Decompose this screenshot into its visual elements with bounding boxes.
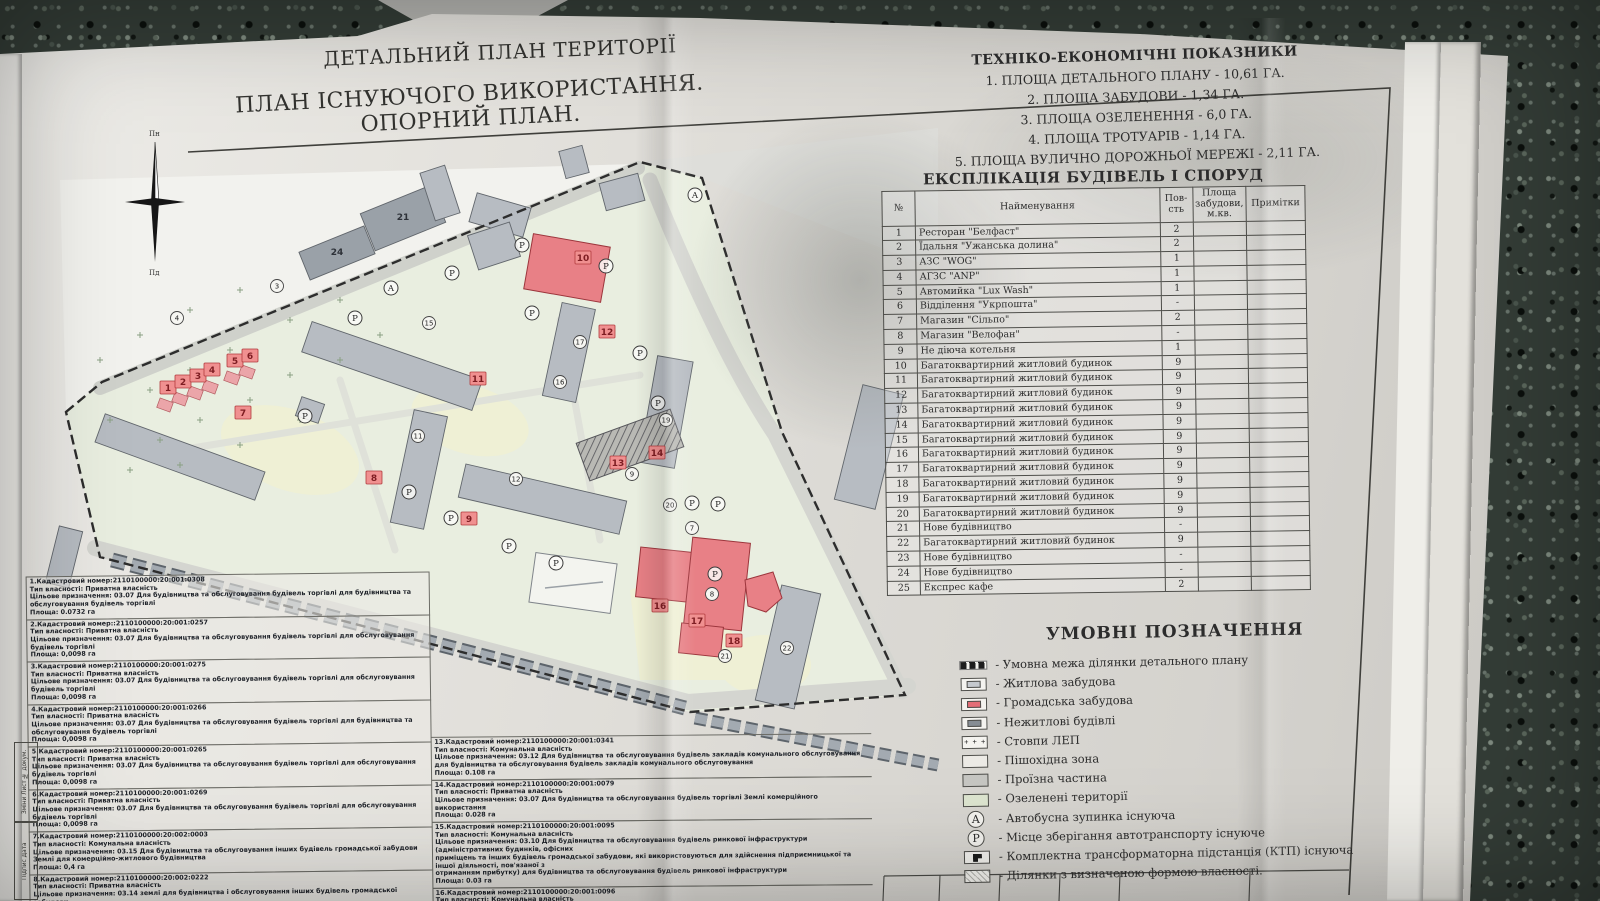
row-area-cell: [1194, 280, 1248, 296]
ktp-symbol-icon: [964, 851, 990, 864]
row-number-cell: 3: [883, 255, 916, 270]
row-number-cell: 2: [883, 240, 916, 255]
row-note-cell: [1248, 324, 1307, 340]
explication-table: №НайменуванняПов-стьПлоща забудови, м.кв…: [881, 185, 1311, 596]
cadastral-block: 15.Кадастровий номер:2110100000:20:001:0…: [432, 818, 873, 888]
row-note-cell: [1250, 457, 1309, 473]
row-area-cell: [1195, 354, 1249, 370]
row-area-cell: [1196, 413, 1250, 429]
row-number-cell: 15: [885, 433, 918, 448]
row-floors-cell: 2: [1160, 236, 1193, 251]
row-area-cell: [1197, 546, 1251, 562]
cadastral-block: 3.Кадастровий номер:2110100000:20:001:02…: [27, 657, 432, 705]
explication-section: ЕКСПЛІКАЦІЯ БУДІВЕЛЬ І СПОРУД №Найменува…: [881, 165, 1311, 596]
row-floors-cell: -: [1161, 325, 1194, 340]
row-floors-cell: 9: [1162, 355, 1195, 370]
row-number-cell: 5: [883, 285, 916, 300]
row-note-cell: [1249, 442, 1308, 458]
row-floors-cell: 1: [1160, 251, 1193, 266]
row-number-cell: 11: [884, 373, 917, 388]
row-number-cell: 17: [886, 462, 919, 477]
row-note-cell: [1251, 546, 1310, 562]
green-symbol-icon: [963, 793, 989, 806]
cadastral-block: 6.Кадастровий номер:2110100000:20:001:02…: [28, 784, 433, 832]
row-number-cell: 23: [887, 551, 920, 566]
row-note-cell: [1250, 472, 1309, 488]
edge-title-block-1: Зміни Лист № докум.: [14, 742, 38, 822]
edge-title-block-label-2: Підпис Дата: [15, 823, 37, 899]
row-area-cell: [1196, 472, 1250, 488]
row-note-cell: [1249, 427, 1308, 443]
row-floors-cell: 9: [1162, 370, 1195, 385]
row-floors-cell: 2: [1165, 577, 1198, 592]
cadastral-block: 7.Кадастровий номер:2110100000:20:002:00…: [29, 827, 434, 875]
row-number-cell: 20: [886, 507, 919, 522]
row-number-cell: 9: [884, 344, 917, 359]
row-note-cell: [1247, 294, 1306, 310]
legend-item-label: - Громадська забудова: [996, 691, 1133, 713]
cadastral-block: 2.Кадастровий номер::2110100000:20:001:0…: [26, 614, 431, 662]
cadastral-block: 8.Кадастровий номер:2110100000:20:002:02…: [29, 869, 434, 901]
cadastral-block: 1.Кадастровий номер:2110100000:20:001:03…: [26, 572, 431, 620]
row-number-cell: 12: [885, 388, 918, 403]
row-area-cell: [1194, 295, 1248, 311]
row-floors-cell: 9: [1164, 532, 1197, 547]
row-note-cell: [1248, 338, 1307, 354]
legend-item-label: - Озеленені території: [998, 787, 1128, 809]
poles-symbol-icon: [962, 736, 988, 749]
photo-of-plan-document: Пн Пд 1234567891011121314161718PPPPPPPPP…: [0, 0, 1600, 901]
boundary-symbol-icon: [960, 662, 986, 669]
row-area-cell: [1195, 398, 1249, 414]
nonres-symbol-icon: [961, 716, 987, 729]
row-note-cell: [1250, 501, 1309, 517]
row-note-cell: [1248, 368, 1307, 384]
row-area-cell: [1193, 265, 1247, 281]
row-note-cell: [1247, 279, 1306, 295]
pedestrian-symbol-icon: [962, 755, 988, 768]
row-number-cell: 1: [882, 226, 915, 241]
row-floors-cell: 9: [1162, 399, 1195, 414]
row-number-cell: 25: [887, 581, 920, 596]
row-note-cell: [1251, 575, 1310, 591]
row-area-cell: [1196, 458, 1250, 474]
row-area-cell: [1197, 532, 1251, 548]
legend-item-label: - Проїзна частина: [997, 769, 1107, 790]
row-note-cell: [1250, 486, 1309, 502]
row-note-cell: [1247, 250, 1306, 266]
legend-section: УМОВНІ ПОЗНАЧЕННЯ - Умовна межа ділянки …: [960, 618, 1395, 887]
cadastral-block: 13.Кадастровий номер:2110100000:20:001:0…: [431, 733, 871, 780]
parking-symbol-icon: P: [967, 830, 984, 847]
row-area-cell: [1193, 221, 1247, 237]
row-area-cell: [1197, 517, 1251, 533]
row-number-cell: 6: [883, 299, 916, 314]
explication-header-row: №НайменуванняПов-стьПлоща забудови, м.кв…: [882, 186, 1305, 226]
row-number-cell: 21: [886, 521, 919, 536]
row-floors-cell: 2: [1161, 310, 1194, 325]
row-note-cell: [1249, 383, 1308, 399]
explication-column-header: №: [882, 191, 915, 226]
residential-symbol-icon: [961, 678, 987, 691]
row-area-cell: [1195, 384, 1249, 400]
row-floors-cell: -: [1164, 547, 1197, 562]
row-floors-cell: 1: [1160, 266, 1193, 281]
explication-column-header: Пов-сть: [1159, 187, 1192, 222]
cadastral-block: 4.Кадастровий номер:2110100000:20:001:02…: [27, 699, 432, 747]
row-area-cell: [1195, 369, 1249, 385]
row-note-cell: [1251, 560, 1310, 576]
row-note-cell: [1251, 531, 1310, 547]
row-floors-cell: 9: [1164, 503, 1197, 518]
row-area-cell: [1198, 561, 1252, 577]
row-area-cell: [1196, 443, 1250, 459]
row-note-cell: [1246, 235, 1305, 251]
row-number-cell: 14: [885, 418, 918, 433]
row-floors-cell: 9: [1163, 414, 1196, 429]
row-note-cell: [1250, 516, 1309, 532]
row-area-cell: [1193, 236, 1247, 252]
cadastral-block: 16.Кадастровий номер:2110100000:20:001:0…: [433, 884, 873, 901]
row-floors-cell: -: [1161, 296, 1194, 311]
row-area-cell: [1194, 324, 1248, 340]
row-floors-cell: 9: [1163, 429, 1196, 444]
row-note-cell: [1248, 309, 1307, 325]
legend-items: - Умовна межа ділянки детального плану- …: [960, 648, 1394, 887]
row-floors-cell: -: [1165, 562, 1198, 577]
roadway-symbol-icon: [962, 774, 988, 787]
row-note-cell: [1249, 398, 1308, 414]
legend-item-label: - Пішохідна зона: [997, 750, 1099, 771]
row-number-cell: 18: [886, 477, 919, 492]
row-area-cell: [1194, 310, 1248, 326]
row-name-cell: Експрес кафе: [920, 577, 1165, 595]
bus-symbol-icon: A: [967, 810, 984, 827]
technical-indicators: ТЕХНІКО-ЕКОНОМІЧНІ ПОКАЗНИКИ 1. ПЛОЩА ДЕ…: [926, 42, 1345, 173]
row-area-cell: [1198, 576, 1252, 592]
legend-item-label: - Нежитлові будівлі: [996, 711, 1115, 732]
row-number-cell: 4: [883, 270, 916, 285]
ownership-symbol-icon: [964, 870, 990, 883]
row-floors-cell: 9: [1163, 458, 1196, 473]
row-floors-cell: 2: [1160, 222, 1193, 237]
public-symbol-icon: [961, 697, 987, 710]
row-floors-cell: 1: [1162, 340, 1195, 355]
technical-indicators-list: 1. ПЛОЩА ДЕТАЛЬНОГО ПЛАНУ - 10,61 ГА.2. …: [927, 61, 1346, 173]
legend-item-label: - Стовпи ЛЕП: [997, 731, 1080, 752]
explication-column-header: Площа забудови, м.кв.: [1192, 186, 1246, 221]
row-floors-cell: -: [1164, 518, 1197, 533]
edge-title-block-label-1: Зміни Лист № докум.: [15, 743, 37, 821]
cadastral-notes-left: 1.Кадастровий номер:2110100000:20:001:03…: [26, 573, 435, 901]
explication-column-header: Примітки: [1246, 186, 1305, 221]
row-area-cell: [1195, 339, 1249, 355]
row-floors-cell: 9: [1163, 444, 1196, 459]
row-number-cell: 10: [884, 359, 917, 374]
row-number-cell: 22: [887, 536, 920, 551]
row-note-cell: [1247, 264, 1306, 280]
edge-title-block-2: Підпис Дата: [14, 822, 38, 900]
row-area-cell: [1196, 428, 1250, 444]
row-number-cell: 8: [884, 329, 917, 344]
row-area-cell: [1197, 487, 1251, 503]
row-note-cell: [1248, 353, 1307, 369]
explication-column-header: Найменування: [915, 188, 1160, 226]
row-number-cell: 24: [887, 566, 920, 581]
cadastral-block: 14.Кадастровий номер:2110100000:20:001:0…: [432, 776, 872, 823]
legend-item-label: - Житлова забудова: [995, 672, 1115, 694]
row-area-cell: [1197, 502, 1251, 518]
row-number-cell: 19: [886, 492, 919, 507]
row-floors-cell: 9: [1163, 473, 1196, 488]
row-number-cell: 13: [885, 403, 918, 418]
row-floors-cell: 1: [1161, 281, 1194, 296]
row-number-cell: 16: [885, 447, 918, 462]
cadastral-block: 5.Кадастровий номер:2110100000:20:001:02…: [28, 742, 433, 790]
cadastral-notes-middle: 13.Кадастровий номер:2110100000:20:001:0…: [431, 734, 872, 901]
row-note-cell: [1246, 220, 1305, 236]
row-floors-cell: 9: [1164, 488, 1197, 503]
row-note-cell: [1249, 412, 1308, 428]
row-floors-cell: 9: [1162, 384, 1195, 399]
row-area-cell: [1193, 250, 1247, 266]
row-number-cell: 7: [884, 314, 917, 329]
